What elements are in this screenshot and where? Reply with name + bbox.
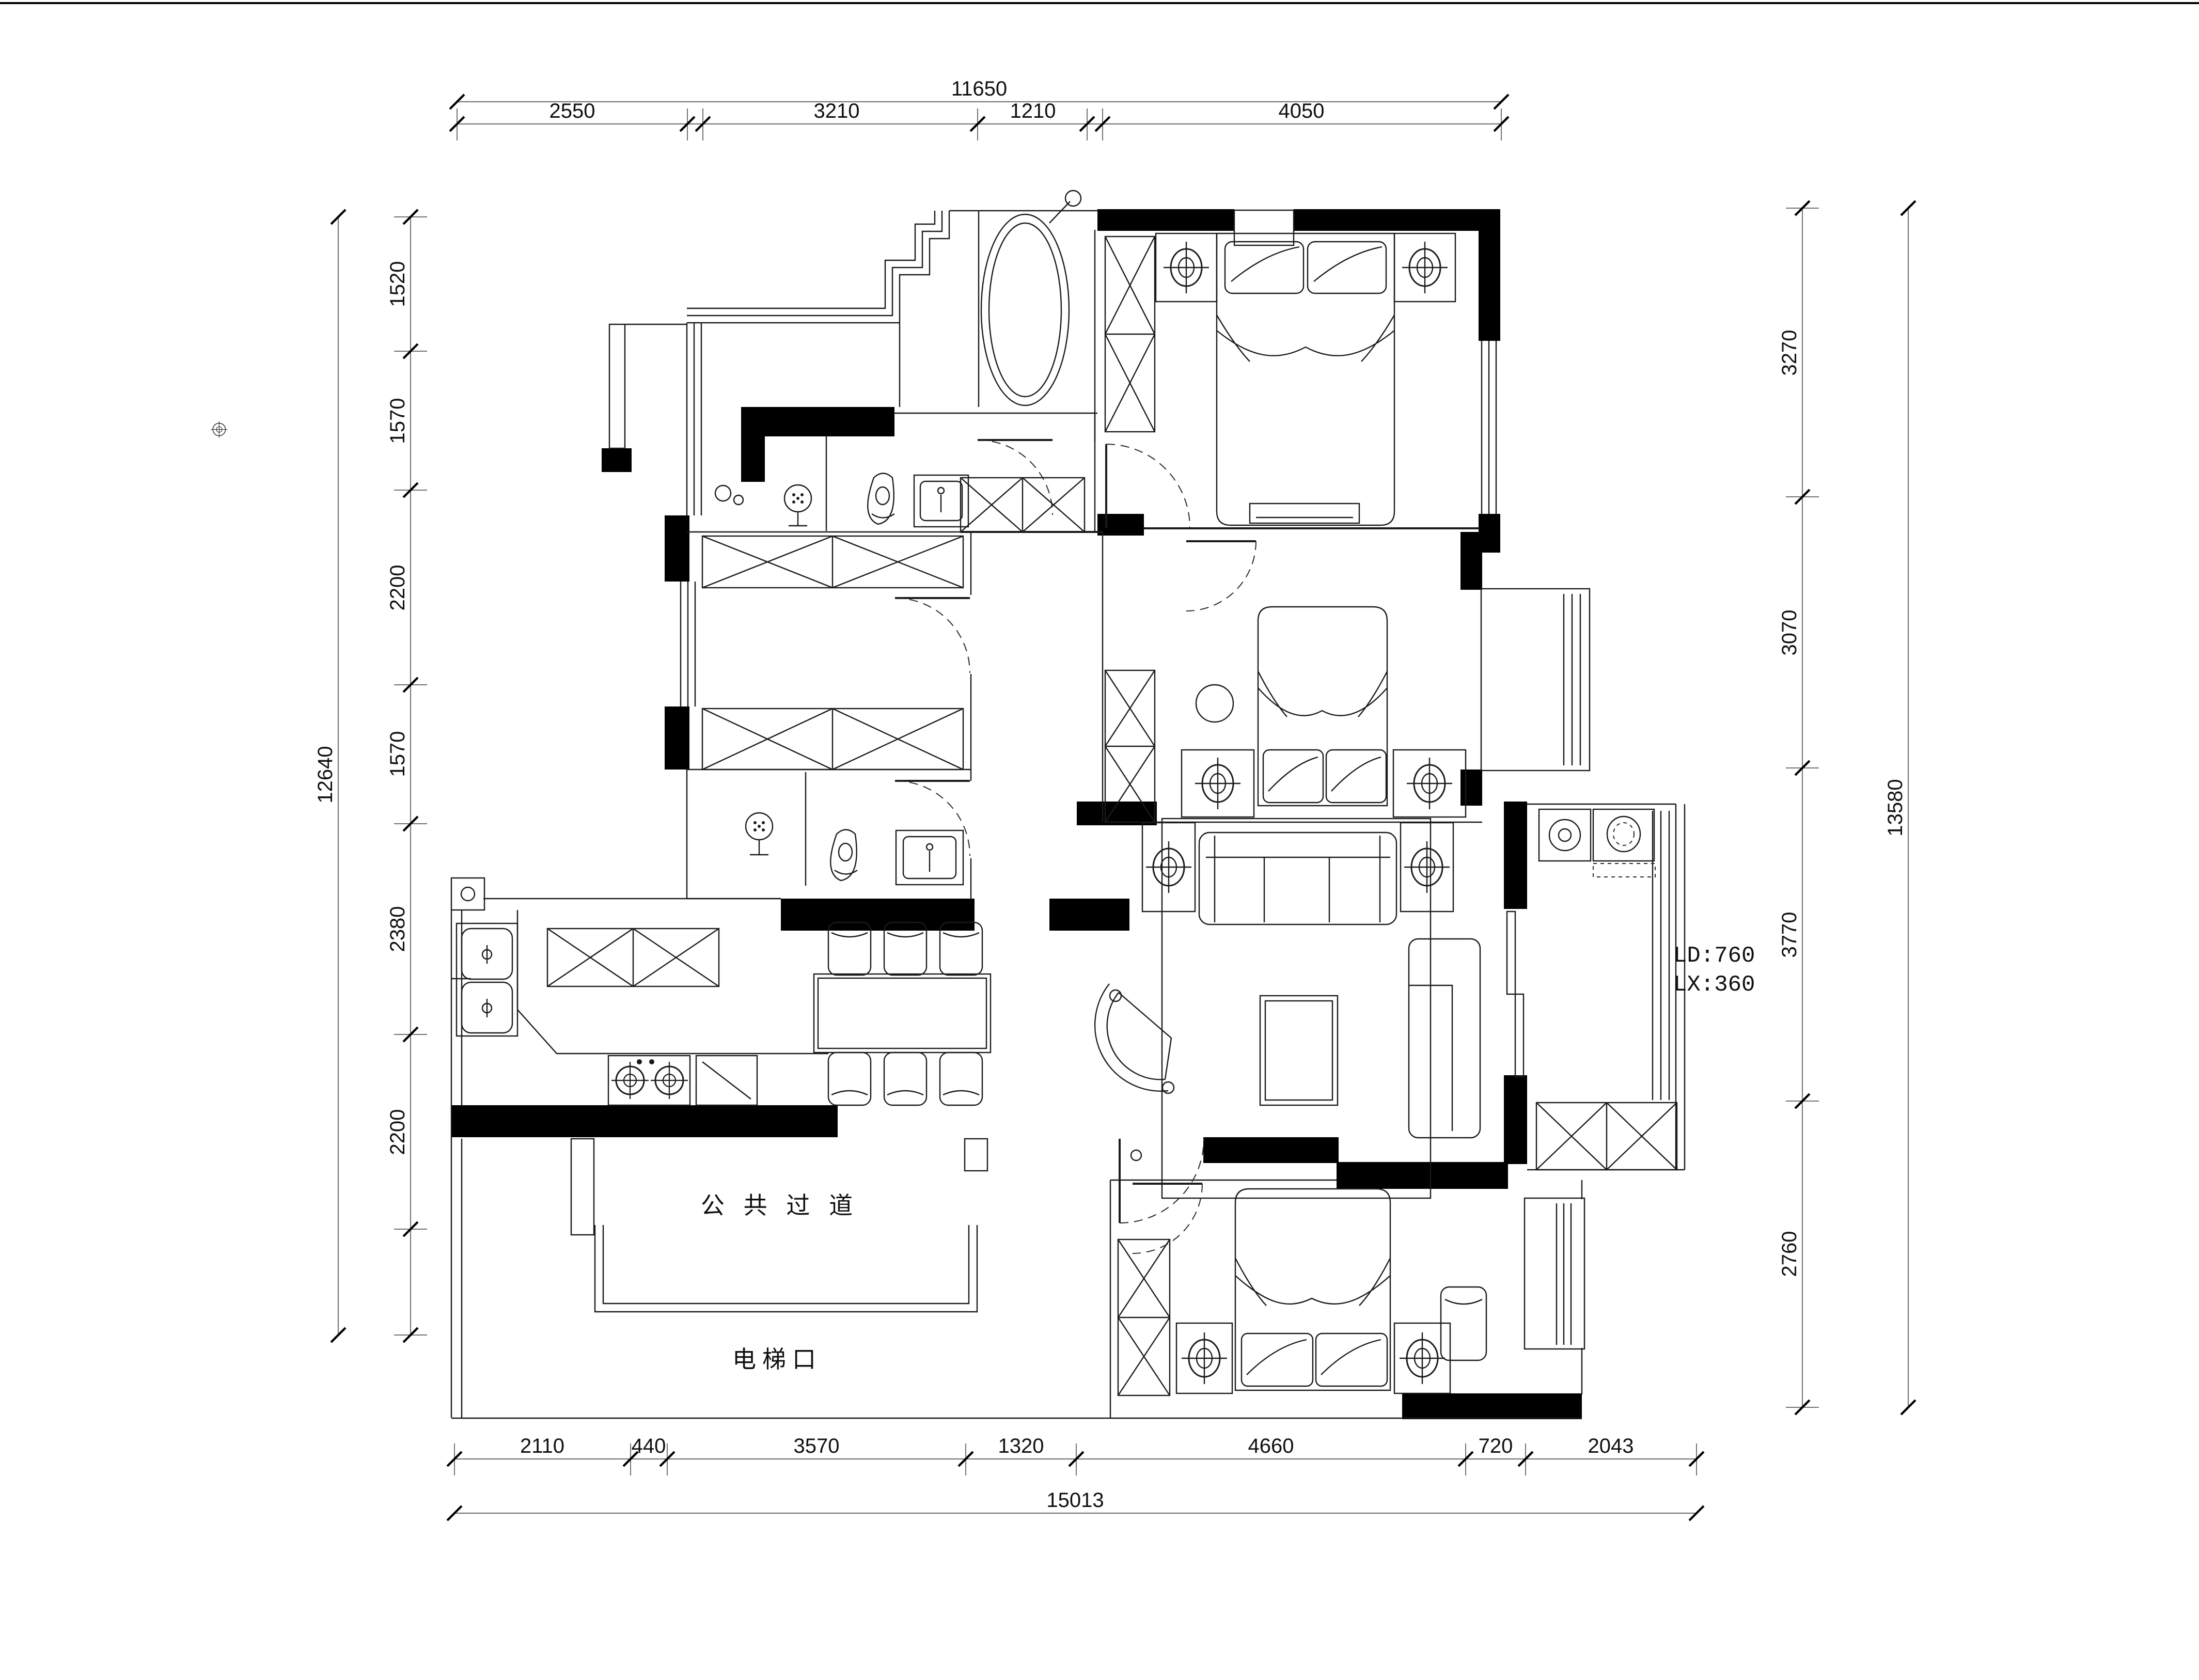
dim-bottom-seg-5: 720	[1479, 1435, 1513, 1457]
door-bathroom2	[895, 781, 970, 856]
dining-chair	[940, 1053, 982, 1105]
dim-right-total: 13580	[1884, 779, 1907, 836]
bed-master	[1217, 233, 1394, 525]
dimension-bottom: 15013 2110 440 3570 1320 4660 720 2043	[447, 1435, 1704, 1520]
bedroom2	[1105, 607, 1466, 822]
dimension-left: 12640 1520 1570 2200 1570 2380 2200	[314, 210, 427, 1342]
column	[965, 1139, 987, 1171]
dim-left-seg-4: 2380	[386, 906, 409, 952]
toilet1	[868, 474, 894, 525]
floor-plan-sheet: 11650 2550 3210 1210 4050 12640 1520 157…	[0, 0, 2199, 1680]
dining-chair	[884, 1053, 926, 1105]
washing-machine	[1539, 809, 1591, 861]
elevator-shaft	[595, 1225, 977, 1312]
bed-bedroom3	[1235, 1189, 1390, 1390]
dimension-top: 11650 2550 3210 1210 4050	[450, 77, 1509, 140]
dim-top-seg-1: 3210	[814, 100, 860, 122]
dim-left-seg-0: 1520	[386, 261, 409, 307]
label-ld: LD:760	[1673, 943, 1755, 969]
dim-bottom-total: 15013	[1046, 1489, 1104, 1512]
kitchen-window-box	[451, 878, 484, 910]
wardrobe-bedroom3	[1118, 1239, 1170, 1395]
label-corridor: 公 共 过 道	[701, 1192, 859, 1219]
dim-top-total: 11650	[951, 77, 1007, 100]
dim-left-seg-2: 2200	[386, 565, 409, 611]
dim-left-seg-3: 1570	[386, 731, 409, 777]
stool	[1196, 685, 1233, 722]
doors	[895, 440, 1256, 1253]
kitchen-counter	[517, 910, 828, 1054]
kitchen-upper-cabinets	[547, 929, 719, 986]
bay-window-bedroom2	[1481, 589, 1590, 771]
toilet2	[830, 830, 857, 881]
sofa	[1199, 833, 1396, 924]
shoe-cabinet	[961, 478, 1085, 532]
bay-window-bedroom3	[1525, 1198, 1584, 1349]
counter-basin	[734, 495, 743, 505]
counter-basin	[715, 485, 731, 501]
bathroom1	[715, 191, 1081, 527]
label-elevator: 电梯口	[732, 1346, 822, 1373]
closet-shelf-bottom	[702, 709, 963, 770]
closet-shelf-top	[702, 536, 963, 588]
wardrobe-bedroom2	[1105, 670, 1155, 822]
dining-chair	[828, 1053, 871, 1105]
kitchen-sink	[211, 421, 517, 1036]
walls	[451, 209, 1582, 1419]
dim-bottom-seg-0: 2110	[520, 1435, 564, 1457]
balcony-cabinet	[1536, 1103, 1677, 1170]
stove	[608, 1056, 690, 1105]
door-bedroom2	[1186, 541, 1256, 611]
dimension-right: 13580 3270 3070 3770 2760	[1778, 201, 1915, 1415]
tv-cabinet	[1250, 504, 1359, 523]
public-corridor	[571, 1139, 987, 1312]
dim-right-seg-3: 2760	[1778, 1231, 1801, 1277]
coffee-table	[1260, 996, 1338, 1105]
bathroom2	[746, 813, 963, 885]
master-bedroom	[1105, 233, 1455, 525]
balcony-sink	[1593, 809, 1655, 877]
bedroom3	[1118, 1189, 1486, 1395]
dining-table	[814, 974, 991, 1053]
bathtub	[981, 191, 1081, 405]
column	[571, 1139, 594, 1235]
dim-bottom-seg-1: 440	[632, 1435, 666, 1457]
dim-bottom-seg-6: 2043	[1588, 1435, 1634, 1457]
dim-bottom-seg-4: 4660	[1248, 1435, 1294, 1457]
shower1	[784, 485, 811, 526]
stepped-window	[609, 211, 949, 706]
balcony	[1507, 804, 1685, 1170]
door-closet	[895, 598, 970, 673]
dim-top-seg-3: 4050	[1279, 100, 1325, 122]
kitchen	[211, 421, 828, 1105]
dim-right-seg-1: 3070	[1778, 610, 1801, 656]
dim-left-total: 12640	[314, 746, 337, 803]
wardrobe-master	[1105, 237, 1155, 432]
dim-bottom-seg-3: 1320	[998, 1435, 1044, 1457]
dining	[814, 922, 991, 1105]
bed-bedroom2	[1258, 607, 1387, 806]
partitions	[451, 211, 1582, 1418]
shower2	[746, 813, 773, 855]
dim-left-seg-1: 1570	[386, 398, 409, 444]
kitchen-side-cabinet	[696, 1056, 757, 1105]
master-headboard	[1234, 210, 1294, 245]
floor-plan-canvas: 11650 2550 3210 1210 4050 12640 1520 157…	[0, 0, 2199, 1680]
dim-top-seg-2: 1210	[1010, 100, 1056, 122]
l-sofa	[1409, 939, 1480, 1138]
dim-top-seg-0: 2550	[549, 100, 595, 122]
closet	[702, 536, 963, 770]
window-master	[1482, 341, 1496, 514]
dim-right-seg-2: 3770	[1778, 912, 1801, 958]
vanity2	[896, 830, 963, 885]
dim-bottom-seg-2: 3570	[794, 1435, 840, 1457]
label-lx: LX:360	[1673, 972, 1755, 998]
dim-right-seg-0: 3270	[1778, 330, 1801, 376]
dim-left-seg-5: 2200	[386, 1109, 409, 1155]
